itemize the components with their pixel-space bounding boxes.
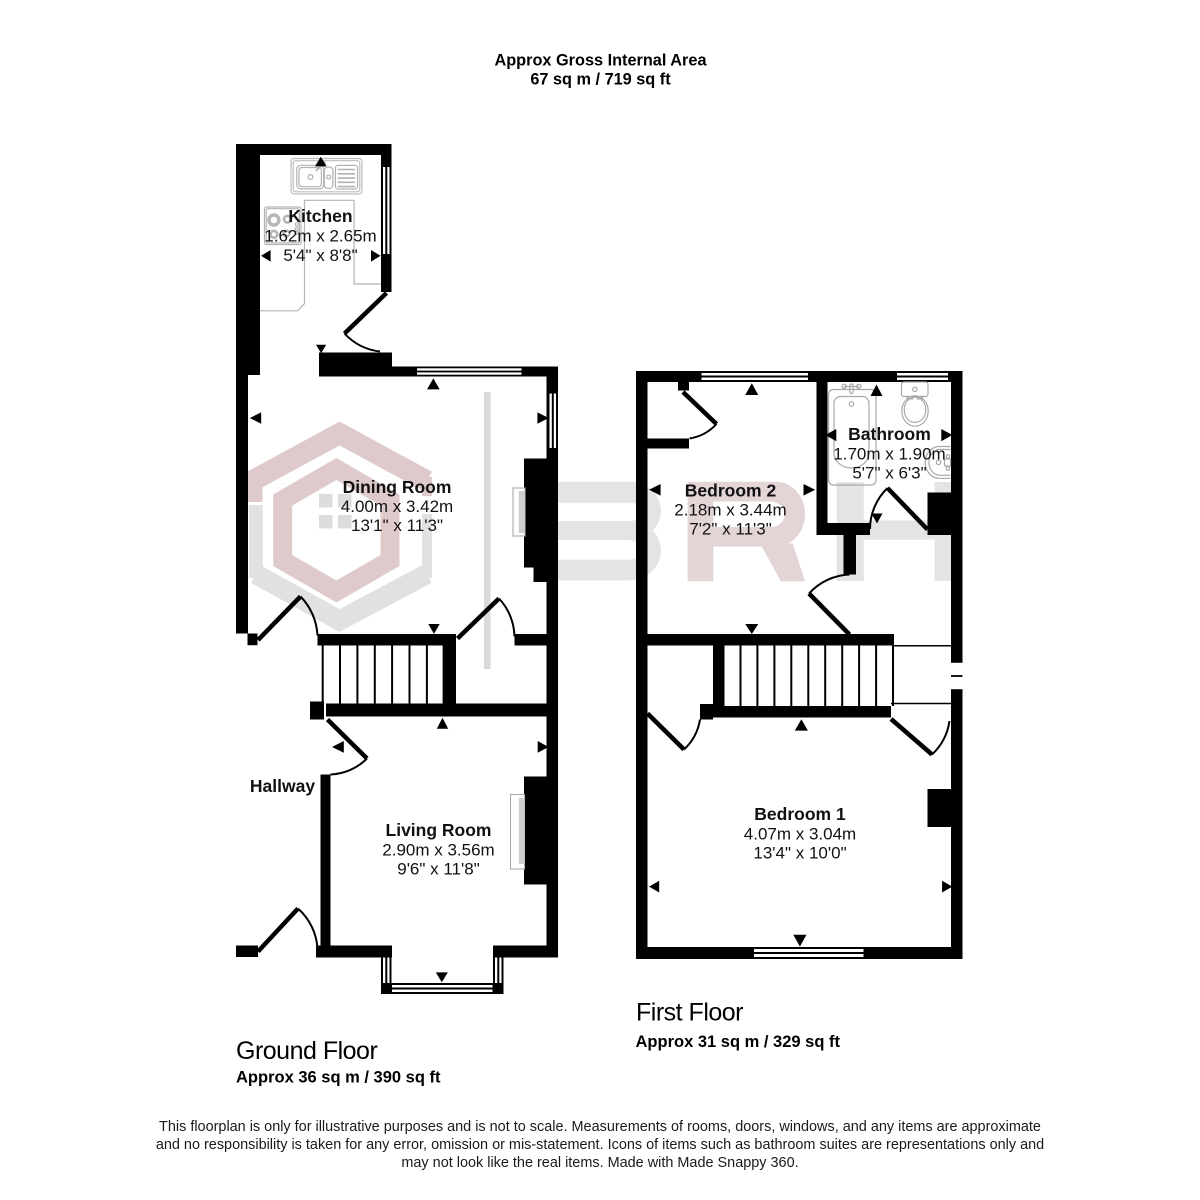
svg-text:Approx Gross Internal Area: Approx Gross Internal Area	[494, 52, 707, 70]
svg-text:First Floor: First Floor	[636, 999, 743, 1027]
svg-text:Dining Room: Dining Room	[343, 477, 452, 497]
svg-text:may not look like the real ite: may not look like the real items. Made w…	[401, 1155, 798, 1171]
svg-text:Bathroom: Bathroom	[848, 424, 931, 444]
svg-text:Bedroom 2: Bedroom 2	[685, 481, 777, 501]
svg-text:4.07m x 3.04m: 4.07m x 3.04m	[744, 825, 856, 844]
svg-text:9'6" x 11'8": 9'6" x 11'8"	[397, 860, 480, 879]
svg-text:Kitchen: Kitchen	[288, 206, 352, 226]
svg-text:Hallway: Hallway	[250, 776, 315, 796]
svg-text:1.62m x 2.65m: 1.62m x 2.65m	[264, 227, 376, 246]
svg-text:7'2" x 11'3": 7'2" x 11'3"	[689, 520, 772, 539]
svg-text:4.00m x 3.42m: 4.00m x 3.42m	[341, 497, 453, 516]
svg-text:13'1" x 11'3": 13'1" x 11'3"	[351, 516, 443, 535]
svg-text:5'4" x 8'8": 5'4" x 8'8"	[283, 246, 357, 265]
svg-text:Ground Floor: Ground Floor	[236, 1037, 377, 1065]
svg-text:13'4" x 10'0": 13'4" x 10'0"	[753, 844, 846, 863]
svg-text:Approx 31 sq m / 329 sq ft: Approx 31 sq m / 329 sq ft	[636, 1033, 841, 1051]
svg-text:5'7" x 6'3": 5'7" x 6'3"	[852, 464, 926, 483]
svg-text:2.18m x 3.44m: 2.18m x 3.44m	[674, 501, 786, 520]
svg-text:Living Room: Living Room	[386, 820, 492, 840]
svg-text:2.90m x 3.56m: 2.90m x 3.56m	[382, 841, 494, 860]
svg-text:and no responsibility is taken: and no responsibility is taken for any e…	[156, 1137, 1044, 1153]
svg-text:This floorplan is only for ill: This floorplan is only for illustrative …	[159, 1119, 1041, 1135]
svg-text:Approx 36 sq m / 390 sq ft: Approx 36 sq m / 390 sq ft	[236, 1069, 441, 1087]
svg-text:Bedroom 1: Bedroom 1	[754, 804, 846, 824]
svg-text:67 sq m / 719 sq ft: 67 sq m / 719 sq ft	[530, 71, 671, 89]
svg-text:1.70m x 1.90m: 1.70m x 1.90m	[833, 445, 945, 464]
